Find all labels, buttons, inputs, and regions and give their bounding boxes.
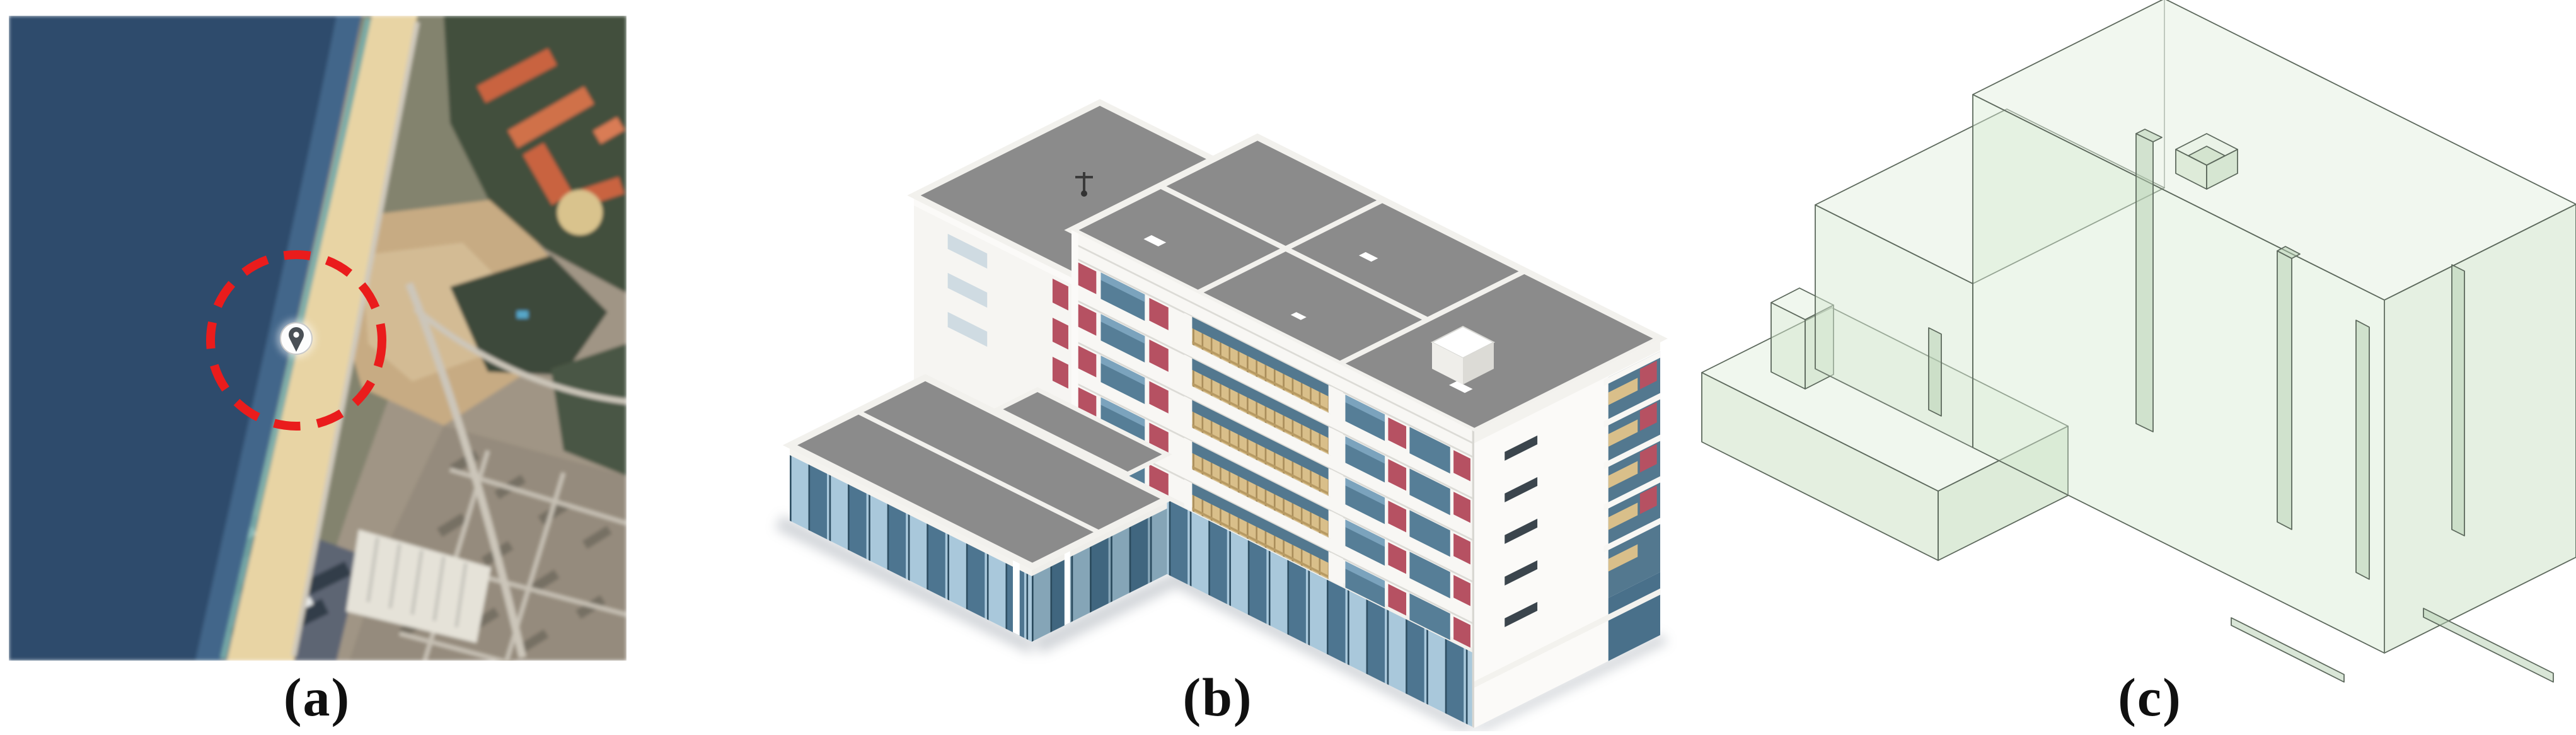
- pool: [517, 311, 528, 318]
- figure-canvas: (a): [0, 0, 2576, 735]
- panel-zone-model: [1677, 0, 2576, 731]
- zone-geometry: [1702, 0, 2576, 682]
- panel-bim-model: [756, 3, 1702, 731]
- panel-label-a: (a): [222, 666, 412, 729]
- satellite-image: [9, 16, 627, 661]
- zone-model: [1677, 0, 2576, 731]
- terrain-layer: [9, 16, 627, 661]
- bim-building-model: [756, 3, 1702, 731]
- panel-label-b: (b): [1123, 666, 1312, 729]
- panel-satellite-map: [9, 16, 627, 661]
- panel-label-c: (c): [2055, 666, 2244, 729]
